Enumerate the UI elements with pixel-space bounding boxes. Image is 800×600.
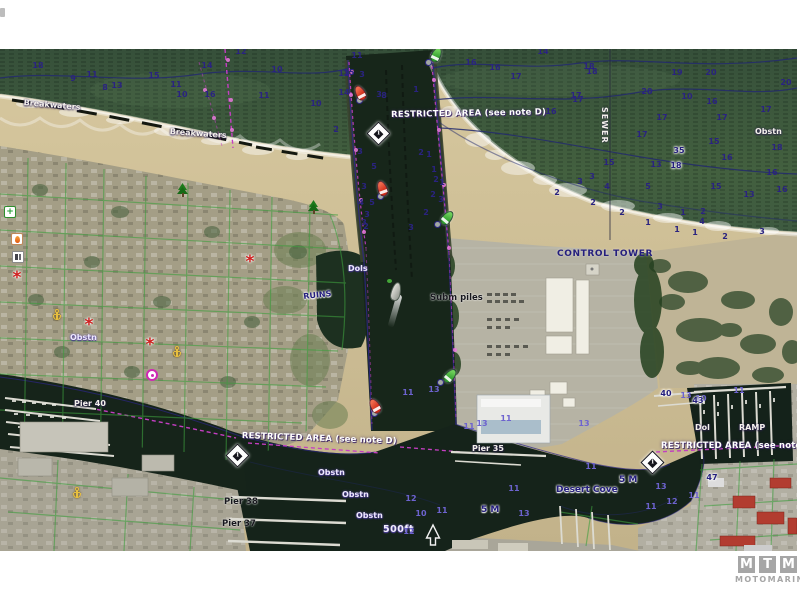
restricted-area-west-label: RESTRICTED AREA (see note D) (242, 432, 397, 446)
depth-sounding: 11 (500, 415, 511, 423)
vessel (388, 282, 408, 332)
depth-sounding: 2 (418, 149, 424, 157)
depth-sounding: 3 (361, 183, 367, 191)
depth-sounding: 3 (357, 148, 363, 156)
dols-label: Dols (348, 265, 368, 273)
first-aid-icon[interactable] (4, 206, 16, 218)
depth-sounding: 15 (603, 159, 614, 167)
depth-sounding: 16 (776, 186, 787, 194)
depth-sounding: 8 (102, 84, 108, 92)
logo-letter: T (759, 556, 776, 573)
depth-sounding: 11 (436, 507, 447, 515)
depth-sounding: 1 (413, 86, 419, 94)
depth-sounding: 3 (577, 178, 583, 186)
depth-sounding: 15 (343, 69, 354, 77)
depth-sounding: 9 (70, 75, 76, 83)
anchor-arm (173, 352, 181, 357)
depth-sounding: 1 (692, 229, 698, 237)
poi-red-icon[interactable] (10, 271, 24, 283)
depth-sounding: 11 (688, 492, 699, 500)
depth-sounding: 10 (271, 66, 282, 74)
depth-sounding: 15 (710, 183, 721, 191)
obstn-town-label: Obstn (70, 334, 97, 342)
breakwaters-north-label: Breakwaters (23, 99, 80, 112)
depth-sounding: 10 (415, 510, 426, 518)
depth-sounding: 2 (363, 223, 369, 231)
depth-sounding: 13 (476, 420, 487, 428)
depth-sounding: 13 (650, 161, 661, 169)
depth-sounding: 2 (554, 189, 560, 197)
depth-sounding: 4 (699, 218, 705, 226)
depth-sounding: 3 (589, 173, 595, 181)
info-glyph: i (648, 458, 658, 468)
depth-sounding: 14 (338, 89, 349, 97)
restricted-area-east-label: RESTRICTED AREA (see note E) (661, 442, 797, 451)
depth-sounding: 11 (86, 71, 97, 79)
depth-sounding: 13 (518, 510, 529, 518)
depth-sounding: 13 (111, 82, 122, 90)
obstn-harbor-2-label: Obstn (342, 491, 369, 499)
depth-sounding: 16 (489, 64, 500, 72)
buoy-body (352, 84, 368, 103)
anchor-arm (53, 315, 61, 320)
can-buoy-green-icon[interactable] (425, 49, 439, 66)
marina-icon[interactable] (146, 369, 158, 381)
desert-cove-label: Desert Cove (556, 486, 618, 495)
obstn-offshore-label: Obstn (755, 128, 782, 136)
depth-sounding: 43 (692, 397, 703, 405)
subm-piles-label: Subm piles (430, 294, 483, 303)
poi-red-icon[interactable] (82, 318, 96, 330)
anchorage-icon[interactable] (72, 487, 82, 500)
info-glyph: i (374, 129, 384, 139)
depth-sounding: 11 (733, 387, 744, 395)
depth-sounding: 16 (465, 59, 476, 67)
depth-sounding: 17 (716, 114, 727, 122)
nun-buoy-red-icon[interactable] (371, 397, 385, 417)
depth-sounding: 2 (722, 233, 728, 241)
depth-sounding: 11 (508, 485, 519, 493)
ramp-label: RAMP (739, 424, 765, 432)
depth-sounding: 15 (148, 72, 159, 80)
depth-sounding: 10 (681, 93, 692, 101)
depth-sounding: 2 (433, 176, 439, 184)
chart-info-marker-icon[interactable]: i (366, 121, 390, 145)
depth-sounding: 18 (32, 62, 43, 70)
chart-info-marker-icon[interactable]: i (640, 450, 664, 474)
logo-letter: M (780, 556, 797, 573)
breakwaters-south-label: Breakwaters (169, 128, 226, 140)
depth-sounding: 2 (333, 126, 339, 134)
depth-sounding: 2 (700, 208, 706, 216)
pier-40-label: Pier 40 (74, 400, 106, 408)
depth-sounding: 10 (176, 91, 187, 99)
obstn-harbor-1-label: Obstn (318, 469, 345, 477)
screenshot-frame: BreakwatersBreakwatersRESTRICTED AREA (s… (0, 0, 800, 600)
depth-sounding: 3 (438, 196, 444, 204)
logo-letter: M (738, 556, 755, 573)
depth-sounding: 3 (359, 71, 365, 79)
depth-sounding: 47 (706, 474, 717, 482)
depth-sounding: 19 (671, 69, 682, 77)
anchorage-icon[interactable] (172, 346, 182, 359)
depth-sounding: 5 (369, 199, 375, 207)
obstn-harbor-3-label: Obstn (356, 512, 383, 520)
tree-icon[interactable] (177, 183, 188, 197)
depth-sounding: 16 (204, 91, 215, 99)
buoy-body (367, 397, 384, 416)
depth-sounding: 11 (258, 92, 269, 100)
depth-sounding: 4 (604, 183, 610, 191)
depth-sounding: 11 (585, 463, 596, 471)
depth-area-south-label: 5 M (481, 506, 499, 515)
pier-37-label: Pier 37 (222, 520, 256, 529)
depth-sounding: 2 (430, 191, 436, 199)
depth-sounding: 17 (510, 73, 521, 81)
depth-sounding: 4 (358, 199, 364, 207)
depth-sounding: 3 (408, 224, 414, 232)
poi-red-icon[interactable] (143, 338, 157, 350)
depth-sounding: 1 (645, 219, 651, 227)
depth-sounding: 18 (670, 162, 681, 170)
depth-sounding: 20 (780, 79, 791, 87)
depth-sounding: 12 (235, 49, 246, 56)
depth-sounding: 16 (721, 154, 732, 162)
depth-area-east-label: 5 M (619, 476, 637, 485)
control-tower-label: CONTROL TOWER (557, 250, 653, 259)
pier-38-label: Pier 38 (224, 498, 258, 507)
edge-artifact (0, 8, 5, 17)
nun-buoy-red-icon[interactable] (377, 180, 391, 200)
depth-sounding: 11 (402, 389, 413, 397)
nun-buoy-red-icon[interactable] (356, 84, 370, 104)
depth-sounding: 1 (426, 151, 432, 159)
poi-red-icon[interactable] (243, 255, 257, 267)
depth-sounding: 17 (572, 96, 583, 104)
depth-sounding: 12 (666, 498, 677, 506)
depth-sounding: 1 (680, 209, 686, 217)
depth-sounding: 3 (376, 91, 382, 99)
depth-sounding: 3 (657, 203, 663, 211)
can-buoy-green-icon[interactable] (437, 366, 451, 386)
depth-sounding: 1 (674, 226, 680, 234)
depth-sounding: 1 (439, 179, 445, 187)
depth-sounding: 17 (656, 114, 667, 122)
vessel-beacon (387, 279, 392, 283)
depth-sounding: 18 (586, 68, 597, 76)
depth-sounding: 2 (423, 209, 429, 217)
logo-subtitle: MOTOMARINE (735, 575, 797, 584)
depth-sounding: 2 (590, 199, 596, 207)
map-canvas[interactable]: BreakwatersBreakwatersRESTRICTED AREA (s… (0, 49, 797, 551)
depth-sounding: 17 (760, 106, 771, 114)
chart-info-marker-icon[interactable]: i (225, 443, 249, 467)
depth-sounding: 1 (431, 166, 437, 174)
depth-sounding: 18 (771, 144, 782, 152)
depth-sounding: 10 (310, 100, 321, 108)
depth-sounding: 14 (537, 49, 548, 56)
depth-sounding: 8 (381, 92, 387, 100)
dol-label: Dol (695, 424, 710, 432)
depth-sounding: 16 (706, 98, 717, 106)
depth-sounding: 3 (364, 211, 370, 219)
flame-icon[interactable] (11, 233, 23, 245)
restricted-area-north-label: RESTRICTED AREA (see note D) (391, 108, 546, 119)
depth-sounding: 5 (645, 183, 651, 191)
sewer-label: SEWER (600, 107, 608, 144)
depth-sounding: 13 (578, 420, 589, 428)
ruins-label: RUINS (303, 290, 332, 301)
depth-sounding: 16 (545, 108, 556, 116)
can-buoy-green-icon[interactable] (434, 208, 448, 228)
tree-trunk (313, 210, 315, 214)
fuel-icon[interactable] (12, 251, 24, 263)
depth-sounding: 16 (766, 169, 777, 177)
tree-trunk (182, 193, 184, 197)
depth-sounding: 11 (351, 52, 362, 60)
depth-sounding: 12 (403, 528, 414, 536)
info-glyph: i (233, 451, 243, 461)
depth-sounding: 17 (636, 131, 647, 139)
depth-sounding: 13 (680, 392, 691, 400)
motomarine-logo: M T M (735, 556, 797, 573)
tree-icon[interactable] (308, 200, 319, 214)
depth-sounding: 20 (641, 88, 652, 96)
depth-sounding: 12 (405, 495, 416, 503)
depth-sounding: 11 (645, 503, 656, 511)
depth-sounding: 15 (708, 138, 719, 146)
pier-35-label: Pier 35 (472, 445, 504, 453)
depth-sounding: 11 (463, 423, 474, 431)
depth-sounding: 3 (759, 228, 765, 236)
depth-sounding: 20 (705, 69, 716, 77)
depth-sounding: 40 (660, 390, 671, 398)
depth-sounding: 2 (619, 209, 625, 217)
depth-sounding: 13 (655, 483, 666, 491)
anchor-arm (73, 493, 81, 498)
anchorage-icon[interactable] (52, 309, 62, 322)
chart-overlay: BreakwatersBreakwatersRESTRICTED AREA (s… (0, 49, 797, 551)
depth-sounding: 11 (170, 81, 181, 89)
depth-sounding: 13 (428, 386, 439, 394)
depth-sounding: 13 (743, 191, 754, 199)
depth-sounding: 5 (371, 163, 377, 171)
depth-sounding: 35 (673, 147, 684, 155)
depth-sounding: 14 (201, 62, 212, 70)
motomarine-watermark: M T M MOTOMARINE (735, 556, 797, 584)
